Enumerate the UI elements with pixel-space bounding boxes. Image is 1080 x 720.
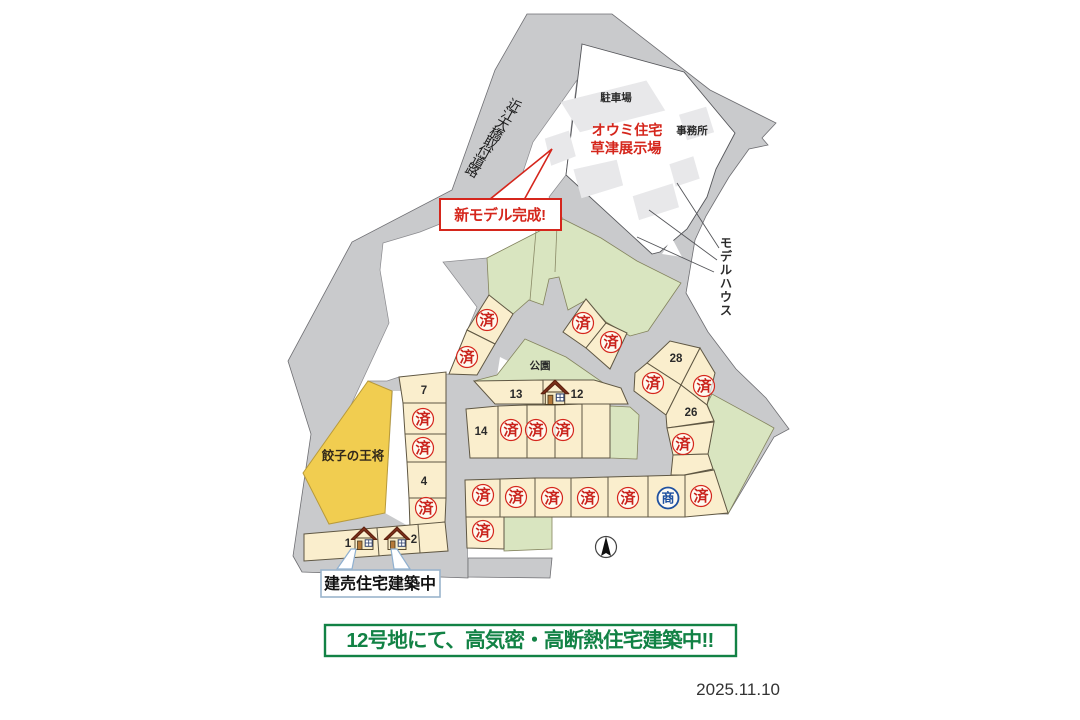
svg-text:2025.11.10: 2025.11.10 bbox=[696, 680, 780, 699]
svg-text:4: 4 bbox=[421, 476, 428, 488]
svg-text:28: 28 bbox=[670, 353, 683, 365]
svg-text:新モデル完成!: 新モデル完成! bbox=[454, 206, 546, 224]
svg-text:事務所: 事務所 bbox=[676, 124, 708, 137]
svg-text:2: 2 bbox=[411, 534, 417, 546]
svg-text:公園: 公園 bbox=[530, 360, 551, 372]
svg-text:商: 商 bbox=[661, 491, 674, 506]
svg-text:13: 13 bbox=[510, 389, 523, 401]
svg-text:7: 7 bbox=[421, 385, 427, 397]
svg-text:12号地にて、高気密・高断熱住宅建築中!!: 12号地にて、高気密・高断熱住宅建築中!! bbox=[346, 628, 713, 652]
svg-text:餃子の王将: 餃子の王将 bbox=[321, 448, 385, 463]
svg-text:14: 14 bbox=[475, 426, 488, 438]
svg-text:オウミ住宅: オウミ住宅 bbox=[592, 122, 663, 139]
svg-text:草津展示場: 草津展示場 bbox=[591, 140, 662, 157]
svg-text:モデルハウス: モデルハウス bbox=[720, 236, 733, 318]
svg-text:12: 12 bbox=[571, 389, 584, 401]
svg-text:建売住宅建築中: 建売住宅建築中 bbox=[324, 574, 436, 593]
svg-text:駐車場: 駐車場 bbox=[600, 91, 632, 104]
svg-text:26: 26 bbox=[685, 407, 698, 419]
